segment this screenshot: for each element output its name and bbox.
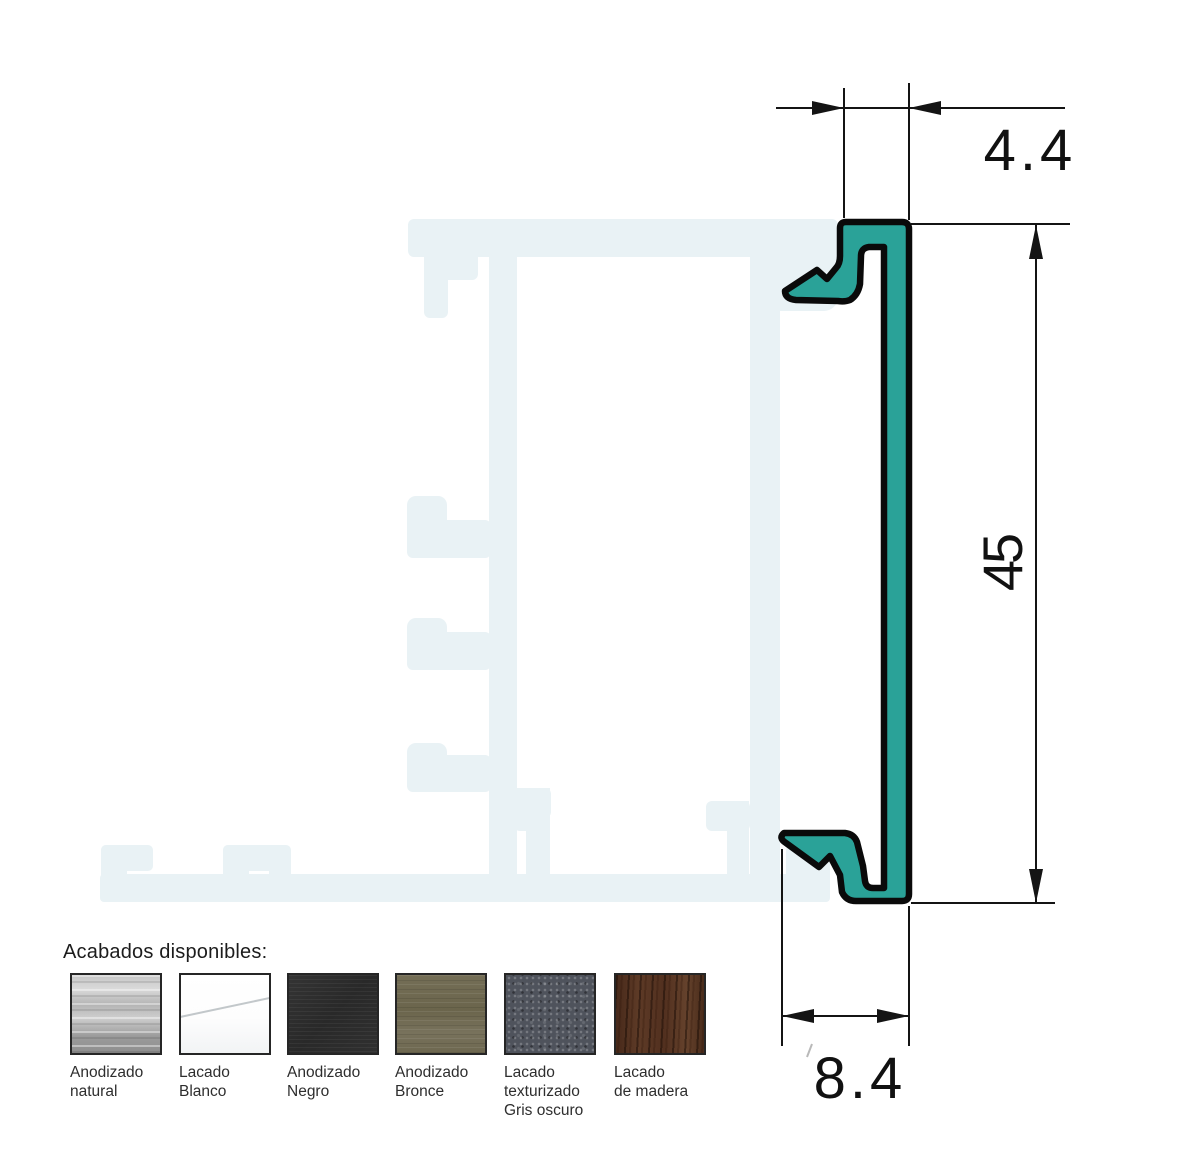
- finish-anodizado-bronce: Anodizado Bronce: [395, 973, 499, 1101]
- finish-anodizado-natural: Anodizado natural: [70, 973, 174, 1101]
- arrowhead: [1029, 869, 1043, 903]
- arrowhead: [1029, 225, 1043, 259]
- finish-swatch-anodizado-bronce: [395, 973, 487, 1055]
- finish-swatch-anodizado-natural: [70, 973, 162, 1055]
- dim-value-height: 45: [971, 535, 1034, 591]
- finish-anodizado-negro: Anodizado Negro: [287, 973, 391, 1101]
- finish-swatch-anodizado-negro: [287, 973, 379, 1055]
- finish-label: Anodizado Negro: [287, 1063, 391, 1101]
- arrowhead: [812, 101, 844, 115]
- stray-tick: [807, 1044, 812, 1057]
- finish-lacado-texturizado-gris-oscuro: Lacado texturizado Gris oscuro: [504, 973, 608, 1120]
- finish-label: Anodizado Bronce: [395, 1063, 499, 1101]
- finishes-title: Acabados disponibles:: [63, 941, 267, 964]
- finish-swatch-gris-oscuro: [504, 973, 596, 1055]
- finish-lacado-blanco: Lacado Blanco: [179, 973, 283, 1101]
- arrowhead: [782, 1009, 814, 1023]
- finish-label: Lacado texturizado Gris oscuro: [504, 1063, 608, 1120]
- dim-value-bottom-width: 8.4: [814, 1046, 907, 1111]
- arrowhead: [877, 1009, 909, 1023]
- dim-value-top-width: 4.4: [984, 118, 1077, 183]
- ghost-bottom-rail: [100, 874, 830, 902]
- finish-label: Lacado de madera: [614, 1063, 718, 1101]
- cover-profile-cross-section: [781, 222, 909, 901]
- finish-label: Anodizado natural: [70, 1063, 174, 1101]
- finish-swatch-lacado-blanco: [179, 973, 271, 1055]
- ghost-stem: [489, 252, 517, 882]
- profile-datasheet: 4.4 45 8.4 Acabados disponibles: Anodiza…: [0, 0, 1187, 1160]
- finish-label: Lacado Blanco: [179, 1063, 283, 1101]
- ghost-profile-outline: [100, 219, 838, 902]
- ghost-right-wall: [750, 255, 780, 882]
- finish-lacado-de-madera: Lacado de madera: [614, 973, 718, 1101]
- arrowhead: [909, 101, 941, 115]
- finish-swatch-madera: [614, 973, 706, 1055]
